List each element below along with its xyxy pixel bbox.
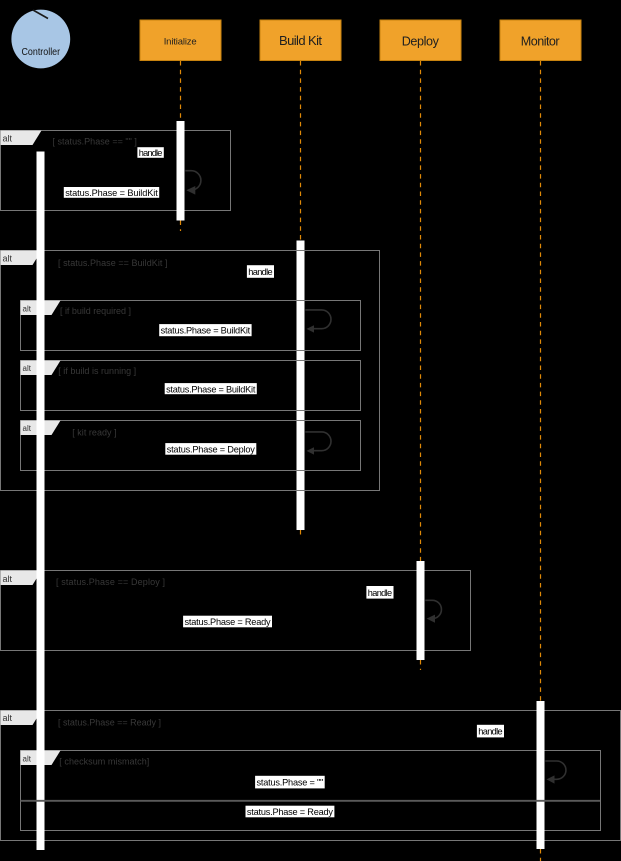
svg-text:status.Phase = Ready: status.Phase = Ready (185, 617, 272, 627)
svg-text:alt: alt (23, 305, 32, 314)
svg-text:status.Phase = Ready: status.Phase = Ready (247, 807, 334, 817)
svg-text:status.Phase = BuildKit: status.Phase = BuildKit (161, 326, 251, 336)
svg-text:[ status.Phase == BuildKit ]: [ status.Phase == BuildKit ] (58, 258, 168, 268)
svg-text:Deploy: Deploy (402, 35, 440, 49)
svg-text:alt: alt (3, 713, 13, 723)
svg-text:status.Phase = Deploy: status.Phase = Deploy (167, 445, 256, 455)
svg-text:[ checksum mismatch]: [ checksum mismatch] (59, 757, 149, 767)
svg-text:Controller: Controller (22, 47, 61, 58)
svg-text:alt: alt (23, 424, 32, 433)
svg-text:handle: handle (248, 267, 272, 277)
svg-text:status.Phase = BuildKit: status.Phase = BuildKit (65, 188, 158, 198)
svg-text:alt: alt (3, 254, 13, 264)
svg-text:status.Phase = BuildKit: status.Phase = BuildKit (166, 384, 256, 394)
svg-text:Initialize: Initialize (164, 36, 197, 47)
svg-text:[ status.Phase == "" ]: [ status.Phase == "" ] (52, 137, 136, 147)
svg-text:Build Kit: Build Kit (279, 33, 322, 48)
svg-text:alt: alt (23, 364, 32, 373)
svg-text:alt: alt (3, 134, 13, 144)
svg-text:[ status.Phase == Ready ]: [ status.Phase == Ready ] (58, 718, 161, 728)
svg-text:handle: handle (139, 148, 163, 158)
svg-text:alt: alt (23, 755, 32, 764)
svg-text:handle: handle (368, 588, 392, 598)
svg-text:[ status.Phase == Deploy ]: [ status.Phase == Deploy ] (56, 577, 165, 587)
svg-text:[ if build required ]: [ if build required ] (60, 306, 131, 316)
svg-text:[ kit ready ]: [ kit ready ] (72, 428, 116, 438)
svg-text:[ if build is running ]: [ if build is running ] (58, 366, 136, 376)
svg-text:Monitor: Monitor (521, 35, 560, 49)
svg-text:status.Phase = "": status.Phase = "" (257, 778, 324, 788)
svg-text:alt: alt (3, 574, 13, 584)
svg-text:handle: handle (478, 727, 502, 737)
